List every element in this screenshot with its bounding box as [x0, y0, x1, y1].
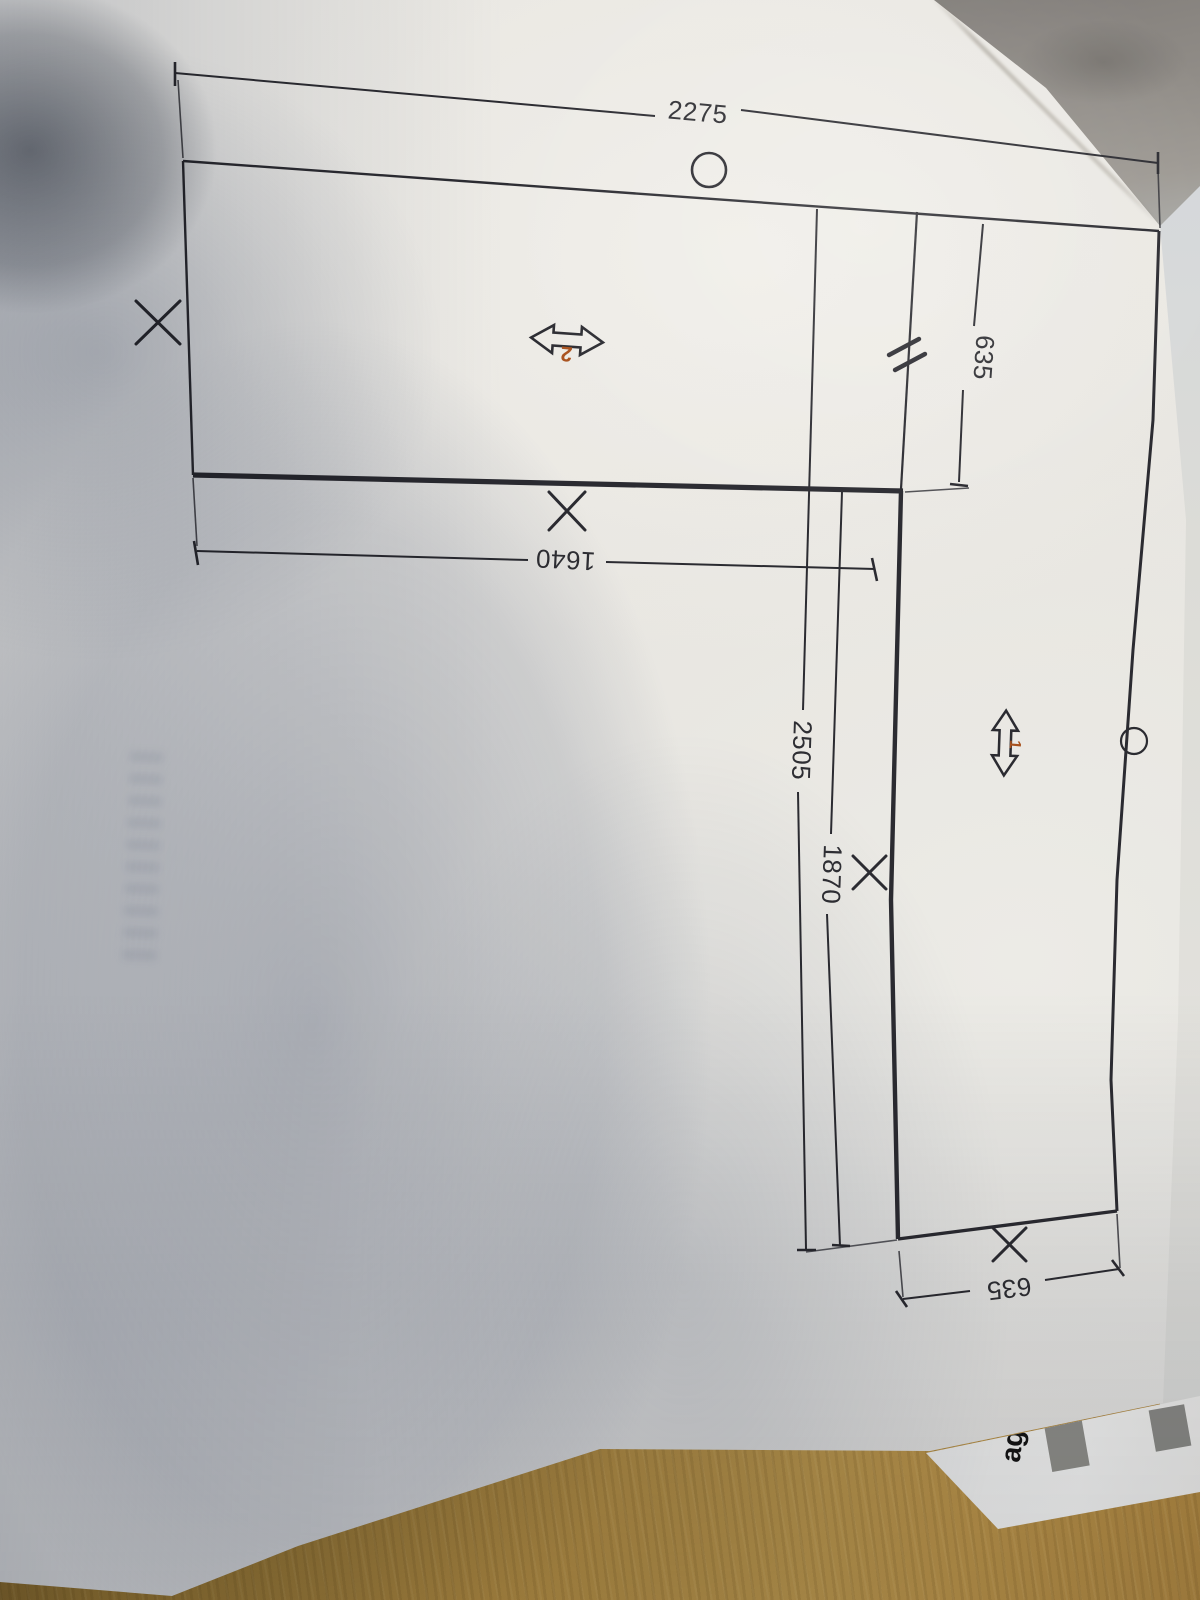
photo-of-worktop-plan: ag. 2275: [0, 0, 1200, 1600]
light-sheen-overlay: [0, 0, 1200, 1600]
